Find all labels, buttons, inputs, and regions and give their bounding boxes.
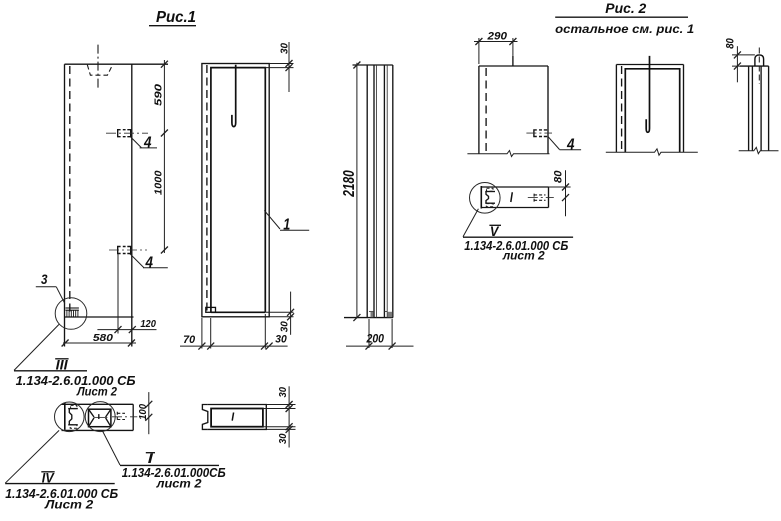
svg-text:290: 290 bbox=[486, 31, 507, 43]
svg-text:120: 120 bbox=[140, 319, 156, 330]
svg-text:4: 4 bbox=[566, 136, 574, 153]
svg-text:2180: 2180 bbox=[341, 170, 358, 197]
svg-text:200: 200 bbox=[366, 334, 385, 346]
svg-text:3: 3 bbox=[41, 272, 48, 287]
svg-text:30: 30 bbox=[275, 334, 287, 346]
svg-text:30: 30 bbox=[277, 387, 289, 398]
svg-text:4: 4 bbox=[143, 135, 151, 152]
svg-text:100: 100 bbox=[137, 404, 149, 420]
svg-text:70: 70 bbox=[183, 334, 196, 346]
svg-text:Лист 2: Лист 2 bbox=[44, 497, 93, 511]
svg-text:30: 30 bbox=[277, 433, 289, 444]
svg-text:1: 1 bbox=[283, 216, 290, 233]
svg-text:580: 580 bbox=[93, 333, 114, 344]
svg-text:1.134-2.6.01.000 СБ: 1.134-2.6.01.000 СБ bbox=[16, 373, 136, 388]
svg-text:30: 30 bbox=[279, 43, 291, 54]
svg-text:лист 2: лист 2 bbox=[155, 477, 201, 491]
svg-text:80: 80 bbox=[725, 37, 737, 48]
svg-text:Рис. 2: Рис. 2 bbox=[605, 1, 646, 16]
svg-text:Лист 2: Лист 2 bbox=[76, 384, 117, 398]
svg-text:590: 590 bbox=[153, 84, 165, 106]
svg-text:Рис.1: Рис.1 bbox=[156, 9, 196, 26]
svg-text:лист 2: лист 2 bbox=[502, 248, 545, 262]
svg-text:1000: 1000 bbox=[153, 170, 165, 195]
svg-text:4: 4 bbox=[145, 254, 153, 271]
svg-text:30: 30 bbox=[279, 321, 291, 332]
svg-text:80: 80 bbox=[553, 170, 565, 183]
svg-text:остальное см. рис. 1: остальное см. рис. 1 bbox=[555, 22, 694, 36]
